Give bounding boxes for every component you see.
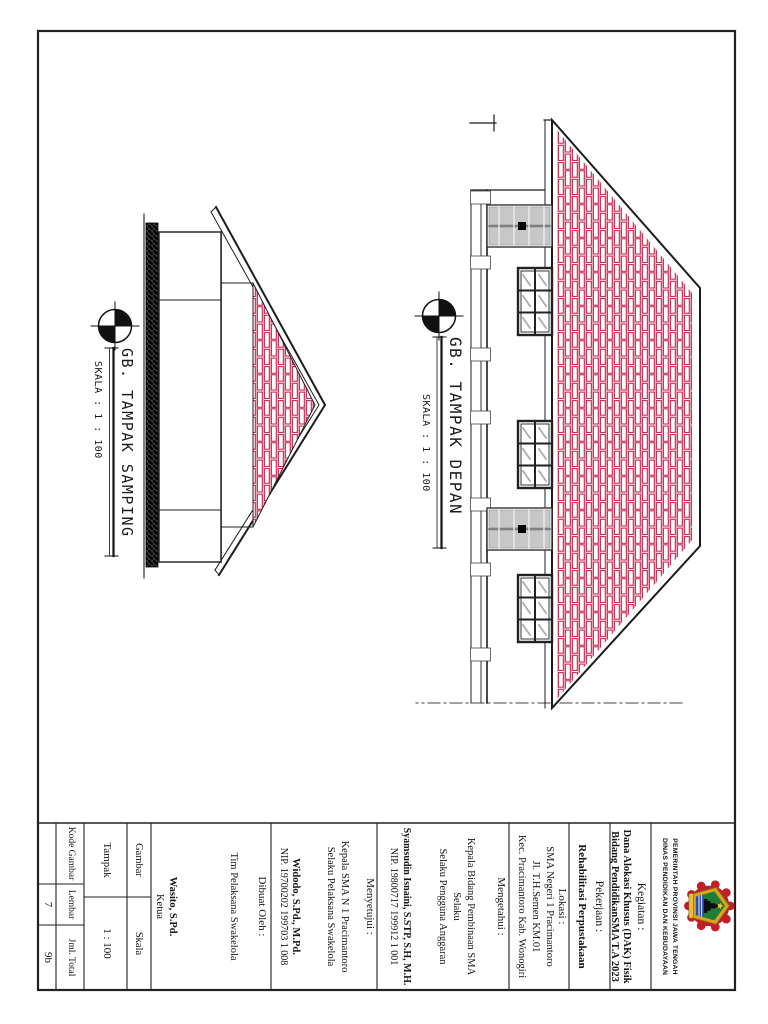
lokasi-line2: Jl. T.H.Semen KM.01: [529, 823, 542, 990]
lokasi-line3: Kec. Pracimantoro Kab. Wonogiri: [515, 823, 528, 990]
agency-name-line1: PEMERINTAH PROVINSI JAWA TENGAH: [670, 823, 679, 990]
mengetahui-name: Syamsudin Isnaini, S.STP, S.H, M.H.: [400, 823, 413, 990]
gambar-label: Gambar: [132, 823, 145, 897]
front-elevation-scale: SKALA : 1 : 100: [419, 394, 432, 492]
side-elevation-scale: SKALA : 1 : 100: [91, 361, 104, 459]
kode-gambar-label: Kode Gambar: [64, 823, 76, 884]
menyetujui-nip: NIP. 19700202 199703 1 008: [277, 823, 290, 990]
kegiatan-line2: Bidang PendidikanSMA T.A 2023: [608, 823, 621, 990]
mengetahui-label: Mengetahui :: [493, 823, 507, 990]
plinth-hatch: [146, 223, 158, 567]
lokasi-label: Lokasi :: [554, 823, 568, 990]
door: [487, 205, 552, 550]
mengetahui-nip: NIP. 19800717 199912 1 001: [387, 823, 400, 990]
front-elevation-title: GB. TAMPAK DEPAN: [445, 337, 465, 515]
menyetujui-role2: Selaku Pelaksana Swakelola: [324, 823, 337, 990]
agency-name-line2: DINAS PENDIDIKAN DAN KEBUDAYAAN: [660, 823, 669, 990]
roof-tile-hatch: [557, 130, 692, 699]
menyetujui-label: Menyetujui :: [362, 823, 376, 990]
skala-label: Skala: [132, 897, 145, 990]
mengetahui-role1: Kepala Bidang Pembinaan SMA: [464, 823, 477, 990]
jml-total-label: Jml. Total: [64, 925, 76, 990]
dibuat-team: Tim Pelaksana Swakelola: [227, 823, 240, 990]
mengetahui-role2: Selaku: [450, 823, 463, 990]
datum-marker: [470, 115, 496, 131]
skala-value: 1 : 100: [99, 897, 113, 990]
drawing-sheet: PEMERINTAH PROVINSI JAWA TENGAH DINAS PE…: [0, 0, 768, 1024]
side-elevation-title: GB. TAMPAK SAMPING: [117, 348, 136, 538]
jml-total-value: 9b: [40, 925, 54, 990]
pekerjaan-value: Rehabilitasi Perpustakaan: [574, 823, 588, 990]
gable-tile-hatch: [253, 283, 315, 527]
menyetujui-name: Widodo, S.Pd., M.Pd.: [289, 823, 302, 990]
side-wall: [159, 232, 221, 562]
central-java-logo: [684, 880, 735, 931]
lokasi-line1: SMA Negeri 1 Pracimantoro: [543, 823, 556, 990]
lembar-value: 7: [40, 884, 54, 925]
kegiatan-label: Kegiatan :: [634, 823, 648, 990]
door-handle: [518, 222, 526, 230]
mengetahui-role3: Selaku Pengguna Anggaran: [436, 823, 449, 990]
window: [518, 268, 552, 642]
sheet-graphics: [0, 0, 768, 1024]
lembar-label: Lembar: [64, 884, 76, 925]
dibuat-role: Ketua: [153, 823, 166, 990]
pekerjaan-label: Pekerjaan :: [592, 823, 606, 990]
drawing-page: PEMERINTAH PROVINSI JAWA TENGAH DINAS PE…: [0, 0, 768, 1024]
menyetujui-role1: Kepala SMA N 1 Pracimantoro: [338, 823, 351, 990]
dibuat-label: Dibuat Oleh :: [254, 823, 268, 990]
dibuat-name: Wasito, S.Pd.: [166, 823, 179, 990]
kegiatan-line1: Dana Alokasi Khusus (DAK) Fisik: [620, 823, 633, 990]
door-handle: [518, 525, 526, 533]
gambar-value: Tampak: [99, 823, 113, 897]
